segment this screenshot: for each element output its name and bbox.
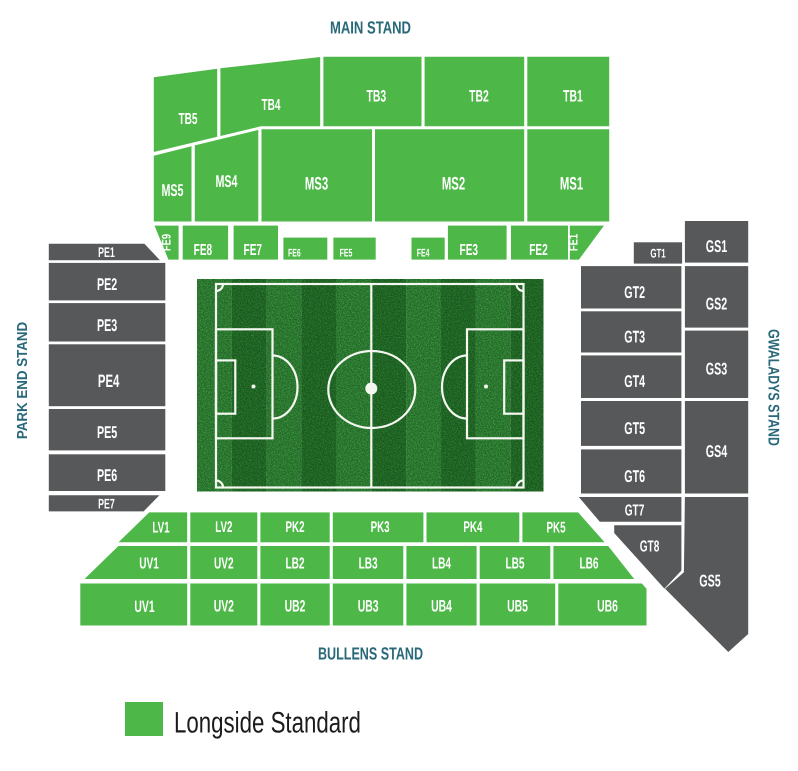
svg-text:FE6: FE6 [288,248,301,260]
svg-text:GT3: GT3 [624,327,645,346]
svg-text:FE7: FE7 [244,242,263,259]
svg-text:LB4: LB4 [432,556,451,573]
svg-text:GS2: GS2 [706,294,727,313]
svg-text:FE8: FE8 [194,242,213,259]
svg-text:GT6: GT6 [624,467,645,486]
svg-text:GT2: GT2 [624,283,645,302]
svg-text:TB4: TB4 [261,97,280,114]
svg-text:UV2: UV2 [214,556,234,573]
svg-text:MS5: MS5 [161,181,183,200]
svg-text:PK4: PK4 [463,519,482,536]
svg-text:PARK END STAND: PARK END STAND [15,322,31,439]
svg-text:UB4: UB4 [431,598,452,616]
svg-text:MS3: MS3 [305,174,328,194]
svg-text:GS4: GS4 [706,442,728,461]
svg-text:LV2: LV2 [215,519,232,536]
svg-text:GS1: GS1 [706,237,727,256]
svg-text:FE5: FE5 [340,248,353,260]
svg-text:PE3: PE3 [97,316,117,335]
svg-text:PE1: PE1 [98,244,115,260]
svg-text:PK2: PK2 [286,519,305,536]
svg-text:GT5: GT5 [624,419,645,438]
svg-text:UV1: UV1 [139,556,159,573]
svg-text:FE3: FE3 [460,242,479,259]
svg-text:LB5: LB5 [505,556,524,573]
svg-text:UB2: UB2 [285,598,306,616]
svg-text:GS5: GS5 [699,572,720,591]
svg-text:UB5: UB5 [507,598,528,616]
svg-text:FE4: FE4 [417,248,430,260]
svg-text:GT8: GT8 [640,539,660,556]
svg-text:UB3: UB3 [358,598,379,616]
svg-text:GT4: GT4 [624,372,645,391]
svg-text:PE6: PE6 [97,466,117,485]
svg-text:TB1: TB1 [563,88,583,106]
svg-text:PE5: PE5 [97,423,117,442]
svg-text:MS4: MS4 [215,172,237,191]
svg-text:BULLENS STAND: BULLENS STAND [318,644,423,664]
svg-text:TB5: TB5 [178,111,197,128]
svg-text:FE1: FE1 [567,234,581,251]
svg-text:PE7: PE7 [98,496,115,512]
svg-text:MAIN STAND: MAIN STAND [330,18,411,38]
svg-text:PE4: PE4 [98,371,119,391]
svg-text:PK3: PK3 [371,519,390,536]
svg-text:UV2: UV2 [214,598,234,616]
svg-text:TB2: TB2 [469,88,489,106]
svg-text:LB2: LB2 [285,556,304,573]
svg-text:FE2: FE2 [529,242,548,259]
svg-text:LV1: LV1 [152,519,169,536]
svg-text:LB3: LB3 [359,556,378,573]
svg-text:PK5: PK5 [547,519,566,536]
svg-text:UV1: UV1 [134,598,154,616]
svg-text:LB6: LB6 [579,556,598,573]
svg-text:UB6: UB6 [597,598,618,616]
svg-text:GS3: GS3 [706,359,727,378]
svg-text:PE2: PE2 [97,275,117,294]
svg-text:FE9: FE9 [160,234,174,251]
svg-text:MS2: MS2 [442,174,465,194]
svg-text:GT7: GT7 [625,502,645,519]
svg-text:TB3: TB3 [366,88,386,106]
svg-text:Longside Standard: Longside Standard [174,707,361,740]
svg-text:MS1: MS1 [560,174,583,194]
svg-text:GT1: GT1 [650,247,665,261]
svg-text:GWALADYS STAND: GWALADYS STAND [765,329,782,446]
